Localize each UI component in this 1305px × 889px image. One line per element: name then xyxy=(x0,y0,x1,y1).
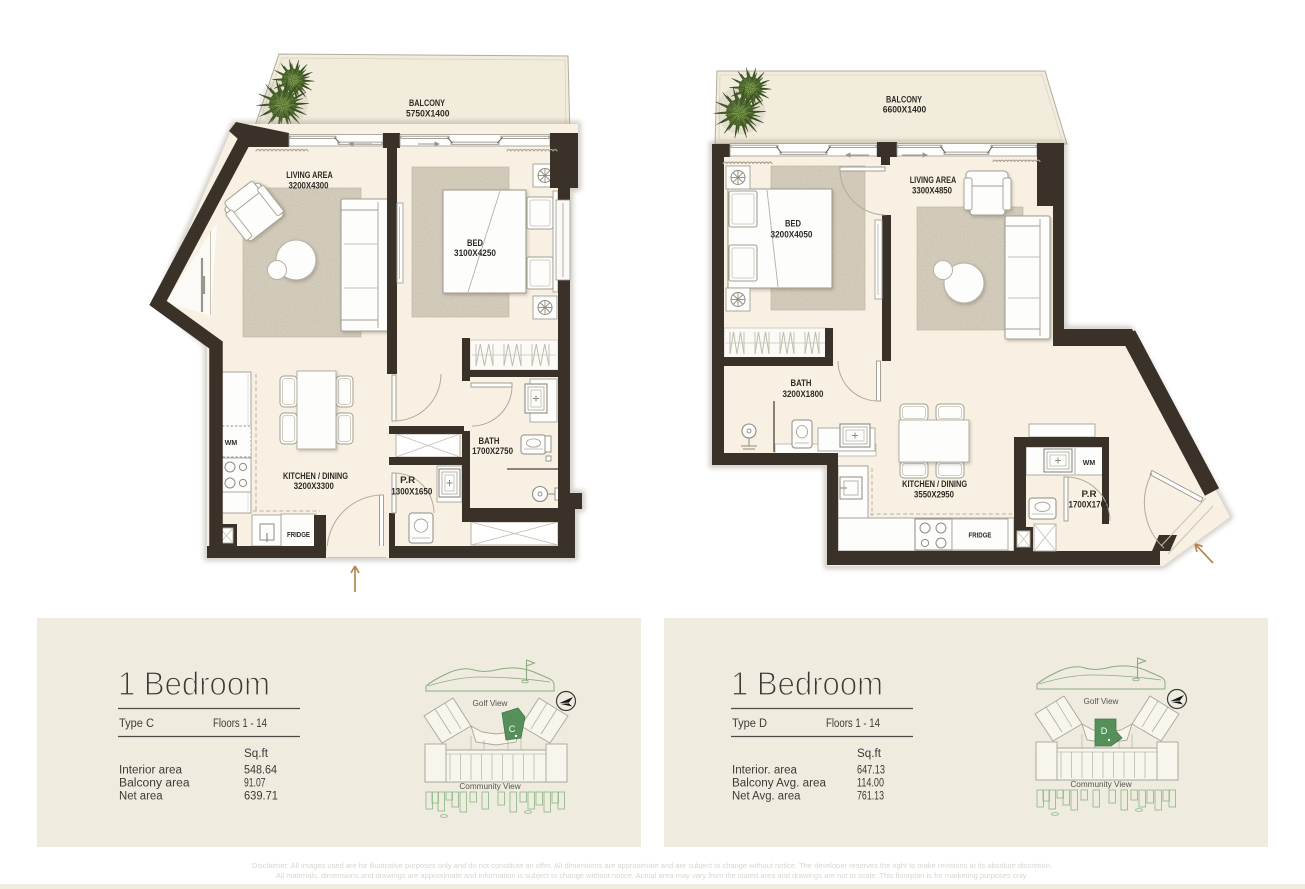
svg-text:548.64: 548.64 xyxy=(244,765,278,777)
svg-text:P.R: P.R xyxy=(1082,489,1098,499)
svg-text:FRIDGE: FRIDGE xyxy=(969,533,992,540)
svg-text:1300X1650: 1300X1650 xyxy=(391,487,432,497)
svg-text:KITCHEN / DINING: KITCHEN / DINING xyxy=(283,471,348,481)
svg-text:Interior area: Interior area xyxy=(119,765,183,777)
svg-text:3200X3300: 3200X3300 xyxy=(294,481,334,491)
svg-text:3550X2950: 3550X2950 xyxy=(914,490,954,500)
svg-text:Disclaimer: All images used ar: Disclaimer: All images used are for illu… xyxy=(252,861,1052,870)
svg-text:3200X4050: 3200X4050 xyxy=(771,230,813,240)
svg-text:C: C xyxy=(509,724,516,734)
svg-text:91.07: 91.07 xyxy=(244,777,266,789)
svg-text:BED: BED xyxy=(785,219,801,229)
svg-text:BATH: BATH xyxy=(479,436,500,446)
svg-text:Golf View: Golf View xyxy=(1084,697,1119,706)
svg-text:1700X1700: 1700X1700 xyxy=(1069,500,1110,510)
svg-text:LIVING AREA: LIVING AREA xyxy=(910,175,957,185)
svg-text:Sq.ft: Sq.ft xyxy=(857,748,882,760)
svg-text:3200X1800: 3200X1800 xyxy=(783,389,824,399)
svg-text:Type C: Type C xyxy=(119,718,154,730)
svg-text:1 Bedroom: 1 Bedroom xyxy=(118,665,270,702)
svg-text:1 Bedroom: 1 Bedroom xyxy=(731,665,883,702)
svg-text:761.13: 761.13 xyxy=(857,790,884,802)
svg-text:KITCHEN / DINING: KITCHEN / DINING xyxy=(902,479,967,489)
svg-text:All materials, dimensions and: All materials, dimensions and drawings a… xyxy=(276,871,1028,880)
svg-text:Net area: Net area xyxy=(119,790,163,802)
svg-text:Golf View: Golf View xyxy=(473,699,508,708)
svg-text:Interior. area: Interior. area xyxy=(732,765,798,777)
svg-text:BALCONY: BALCONY xyxy=(409,98,445,108)
svg-text:Net Avg. area: Net Avg. area xyxy=(732,790,801,802)
svg-text:Community View: Community View xyxy=(1070,780,1131,789)
svg-text:647.13: 647.13 xyxy=(857,765,885,777)
svg-text:FRIDGE: FRIDGE xyxy=(287,532,310,539)
svg-text:639.71: 639.71 xyxy=(244,790,278,802)
svg-text:BED: BED xyxy=(467,238,483,248)
svg-text:Floors 1 - 14: Floors 1 - 14 xyxy=(213,718,267,730)
svg-text:Balcony area: Balcony area xyxy=(119,777,190,789)
svg-text:5750X1400: 5750X1400 xyxy=(406,109,450,119)
svg-text:Type D: Type D xyxy=(732,718,767,730)
svg-text:D: D xyxy=(1101,726,1108,736)
svg-text:Floors 1 - 14: Floors 1 - 14 xyxy=(826,718,880,730)
svg-text:WM: WM xyxy=(225,440,238,447)
svg-text:P.R: P.R xyxy=(400,475,416,485)
svg-text:BALCONY: BALCONY xyxy=(886,95,922,105)
svg-text:LIVING AREA: LIVING AREA xyxy=(286,170,333,180)
svg-text:6600X1400: 6600X1400 xyxy=(883,105,927,115)
svg-text:114.00: 114.00 xyxy=(857,777,884,789)
svg-text:Community View: Community View xyxy=(459,782,520,791)
svg-text:3100X4250: 3100X4250 xyxy=(454,248,496,258)
svg-text:BATH: BATH xyxy=(791,378,812,388)
svg-text:WM: WM xyxy=(1083,460,1096,467)
svg-text:Balcony Avg. area: Balcony Avg. area xyxy=(732,777,827,789)
svg-text:1700X2750: 1700X2750 xyxy=(472,446,513,456)
svg-text:Sq.ft: Sq.ft xyxy=(244,748,269,760)
svg-text:3200X4300: 3200X4300 xyxy=(289,181,329,191)
svg-text:3300X4850: 3300X4850 xyxy=(912,186,952,196)
